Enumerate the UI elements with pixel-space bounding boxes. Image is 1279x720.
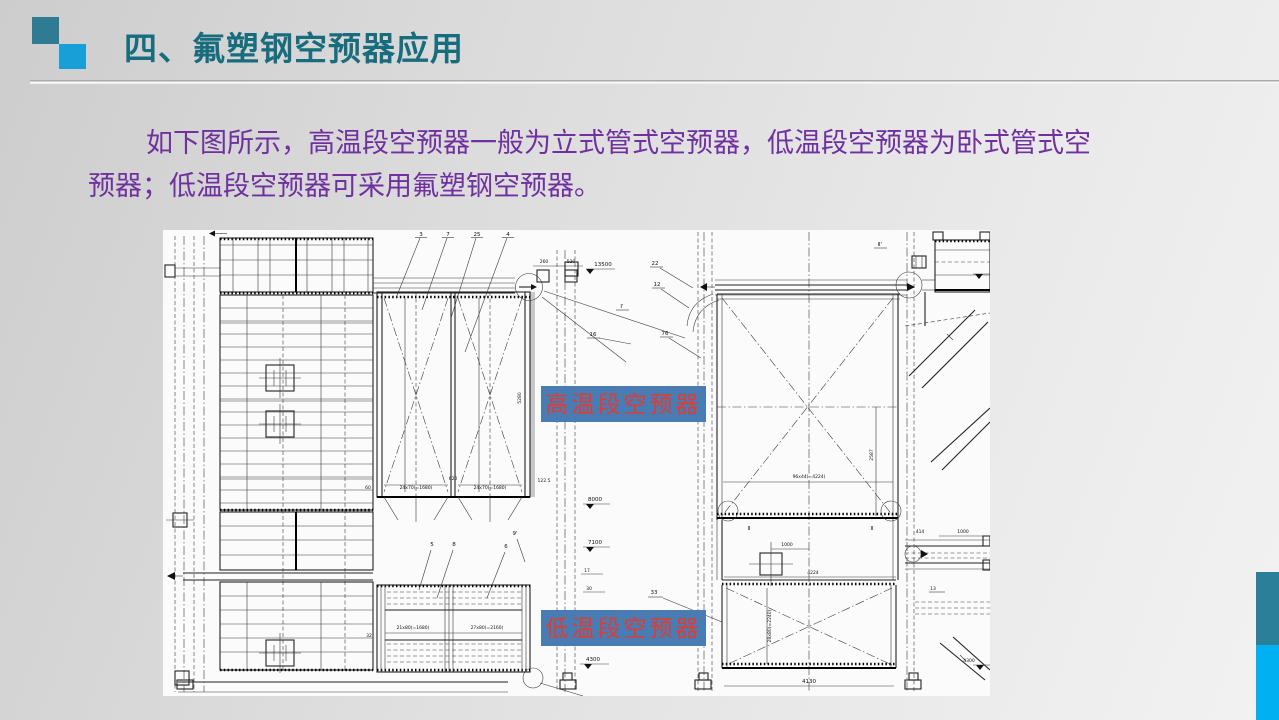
- svg-text:8000: 8000: [588, 497, 602, 503]
- svg-text:1000: 1000: [781, 542, 793, 548]
- svg-text:4300: 4300: [963, 658, 975, 664]
- edge-bar-blue: [1256, 645, 1279, 720]
- svg-text:5: 5: [430, 542, 434, 548]
- svg-text:6: 6: [504, 544, 508, 550]
- svg-text:9': 9': [512, 531, 517, 537]
- body-line-1: 如下图所示，高温段空预器一般为立式管式空预器，低温段空预器为卧式管式空: [88, 122, 1188, 165]
- svg-text:4300: 4300: [586, 657, 600, 663]
- svg-text:28x80(=2240): 28x80(=2240): [767, 609, 773, 642]
- decorative-square-dark: [32, 17, 59, 44]
- low-temp-aph-callout: 低温段空预器: [541, 610, 706, 646]
- svg-text:60: 60: [365, 485, 371, 491]
- svg-text:17: 17: [584, 568, 590, 574]
- svg-text:Ⅰ': Ⅰ': [620, 304, 623, 310]
- svg-text:33: 33: [651, 590, 658, 596]
- svg-text:260: 260: [540, 259, 549, 265]
- svg-text:22: 22: [652, 261, 659, 267]
- high-temp-towers: 60 24x70(=1680) 620 24x70(=1680) 122.5 5…: [365, 232, 685, 522]
- left-column-lines: [165, 236, 220, 692]
- svg-text:Ⅱ': Ⅱ': [878, 242, 882, 248]
- right-side-ducts: 414 1000 13 4300: [905, 232, 990, 680]
- svg-text:24x70(=1680): 24x70(=1680): [400, 485, 433, 491]
- svg-text:16: 16: [590, 332, 597, 338]
- svg-text:4224: 4224: [807, 570, 819, 576]
- svg-text:3: 3: [419, 232, 423, 238]
- elevation-markers: 8000 7100 17 30 4300 22 12 76 16: [580, 261, 701, 669]
- cad-drawing-panel: 60 24x70(=1680) 620 24x70(=1680) 122.5 5…: [163, 230, 990, 696]
- svg-text:27x80(=2160): 27x80(=2160): [471, 625, 504, 631]
- svg-text:13500: 13500: [594, 262, 612, 268]
- svg-text:13: 13: [930, 586, 936, 592]
- body-line-2: 预器；低温段空预器可采用氟塑钢空预器。: [88, 165, 1188, 208]
- decorative-square-light: [59, 44, 86, 69]
- svg-text:1000: 1000: [957, 529, 969, 535]
- svg-text:76: 76: [662, 331, 669, 337]
- svg-text:4: 4: [506, 232, 510, 238]
- svg-text:620: 620: [449, 476, 458, 482]
- svg-text:414: 414: [916, 529, 925, 535]
- high-temp-aph-callout: 高温段空预器: [541, 386, 706, 422]
- edge-bar-teal: [1256, 572, 1279, 645]
- svg-text:21x80(=1680): 21x80(=1680): [397, 625, 430, 631]
- svg-text:2587: 2587: [869, 449, 875, 461]
- svg-text:Ⅱ: Ⅱ: [871, 526, 874, 532]
- svg-text:7: 7: [446, 232, 450, 238]
- body-paragraph: 如下图所示，高温段空预器一般为立式管式空预器，低温段空预器为卧式管式空 预器；低…: [88, 122, 1188, 208]
- slide-title: 四、氟塑钢空预器应用: [124, 22, 464, 70]
- svg-text:25: 25: [474, 232, 481, 238]
- right-chamber-view: 2587 Ⅱ' 96x44(=4224) Ⅱ Ⅱ 1000: [687, 232, 926, 692]
- svg-text:32: 32: [366, 633, 372, 639]
- svg-text:Ⅱ: Ⅱ: [748, 526, 751, 532]
- svg-text:122.5: 122.5: [538, 478, 551, 484]
- svg-text:12: 12: [654, 282, 661, 288]
- svg-text:30: 30: [586, 586, 592, 592]
- title-divider: [30, 80, 1279, 84]
- svg-text:96x44(=4224): 96x44(=4224): [793, 474, 826, 480]
- svg-text:24x70(=1680): 24x70(=1680): [474, 485, 507, 491]
- svg-text:8: 8: [452, 542, 456, 548]
- svg-text:7100: 7100: [588, 540, 602, 546]
- svg-text:4130: 4130: [802, 679, 816, 685]
- svg-text:5280: 5280: [517, 392, 523, 404]
